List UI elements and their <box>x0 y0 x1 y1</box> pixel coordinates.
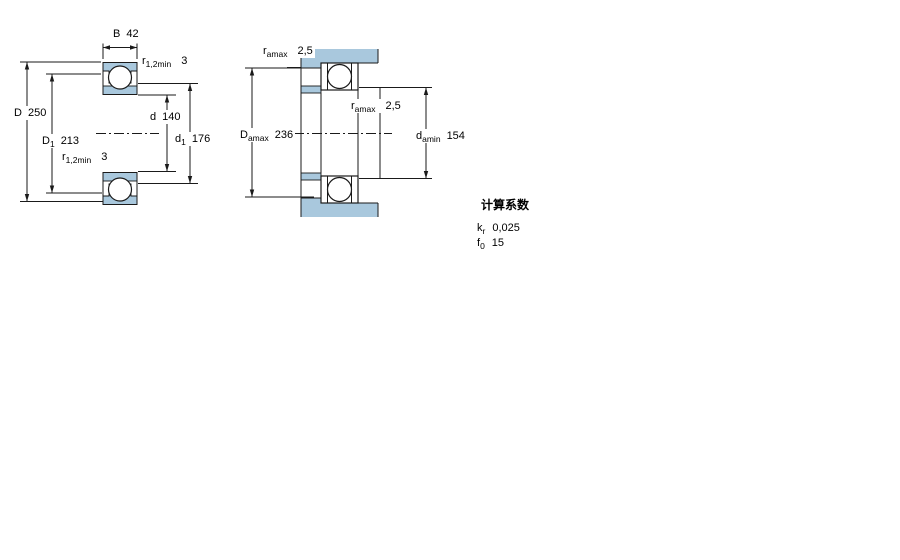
dim-label-D: D250 <box>12 106 48 120</box>
dim-value: 2,5 <box>385 100 400 112</box>
dim-label-r12min-top: r1,2min3 <box>140 54 189 68</box>
dim-label-damin: damin154 <box>414 129 467 143</box>
dim-value: 2,5 <box>297 45 312 57</box>
dim-value: 250 <box>28 107 46 119</box>
dim-label-B: B42 <box>111 27 141 41</box>
dim-symbol: D <box>240 129 248 141</box>
dim-value: 176 <box>192 133 210 145</box>
dim-symbol: B <box>113 28 120 40</box>
dim-subscript: 1 <box>181 137 186 147</box>
ball-bottom <box>109 178 132 201</box>
dim-label-Damax: Damax236 <box>238 128 295 142</box>
dim-label-D1: D1213 <box>40 134 81 148</box>
dim-subscript: 1,2min <box>146 59 172 69</box>
dimension-D <box>20 62 103 202</box>
calculation-factors-title: 计算系数 <box>481 196 529 213</box>
dim-subscript: amax <box>355 104 376 114</box>
factor-subscript: r <box>483 226 486 236</box>
dim-value: 3 <box>181 55 187 67</box>
dim-subscript: 1,2min <box>66 155 92 165</box>
dim-value: 140 <box>162 111 180 123</box>
page: B42 r1,2min3 D250 D1213 r1,2min3 d140 d1… <box>0 0 900 560</box>
factor-value: 0,025 <box>492 222 520 234</box>
ball-bottom <box>328 178 352 202</box>
dim-subscript: 1 <box>50 139 55 149</box>
dim-value: 42 <box>126 28 138 40</box>
dim-subscript: amin <box>422 134 440 144</box>
dim-value: 236 <box>275 129 293 141</box>
dim-label-d: d140 <box>148 110 182 124</box>
dim-subscript: amax <box>248 133 269 143</box>
factor-f0: f015 <box>477 236 529 251</box>
dim-symbol: D <box>42 135 50 147</box>
dim-symbol: d <box>150 111 156 123</box>
factor-value: 15 <box>492 237 504 249</box>
shaft-shoulder-top <box>301 86 321 93</box>
ball-top <box>328 65 352 89</box>
shaft-shoulder-bottom <box>301 173 321 180</box>
dim-symbol: D <box>14 107 22 119</box>
dim-subscript: amax <box>267 49 288 59</box>
dimension-B <box>103 44 137 60</box>
dim-value: 213 <box>61 135 79 147</box>
dim-label-ramax-mid: ramax2,5 <box>349 99 403 113</box>
ball-top <box>109 66 132 89</box>
dim-label-d1: d1176 <box>173 132 212 146</box>
dim-value: 3 <box>101 151 107 163</box>
dim-value: 154 <box>447 130 465 142</box>
factor-kr: kr0,025 <box>477 221 529 236</box>
dim-label-r12min-bottom: r1,2min3 <box>60 150 109 164</box>
calculation-factors-block: 计算系数 kr0,025 f015 <box>477 196 529 251</box>
dim-label-ramax-top: ramax2,5 <box>261 44 315 58</box>
factor-subscript: 0 <box>480 241 485 251</box>
